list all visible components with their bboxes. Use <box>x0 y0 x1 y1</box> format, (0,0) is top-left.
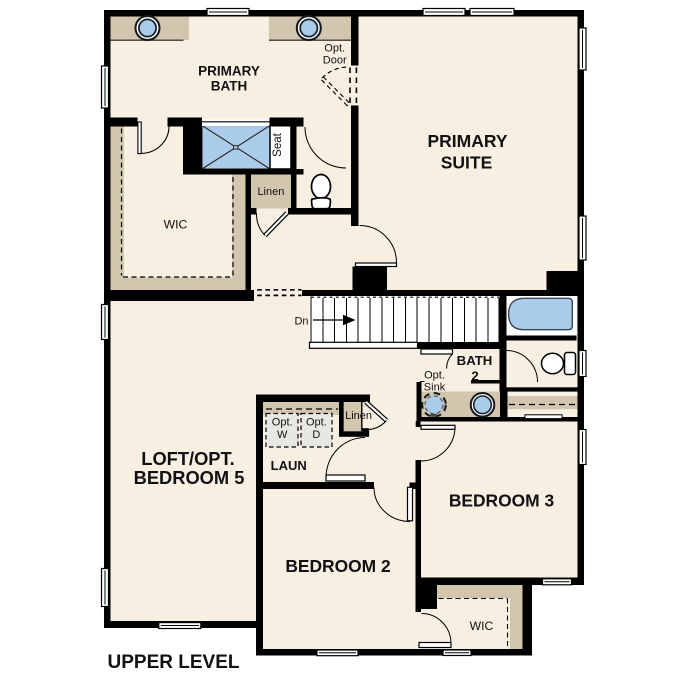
svg-text:Sink: Sink <box>424 381 446 393</box>
svg-text:LOFT/OPT.: LOFT/OPT. <box>141 448 234 469</box>
svg-text:BATH: BATH <box>457 353 493 368</box>
svg-text:2: 2 <box>471 369 478 384</box>
svg-text:LAUN: LAUN <box>271 458 307 473</box>
svg-text:Dn: Dn <box>294 316 308 328</box>
svg-text:Opt.: Opt. <box>324 43 345 55</box>
svg-text:W: W <box>277 429 288 441</box>
svg-text:Seat: Seat <box>272 132 284 156</box>
svg-text:Opt.: Opt. <box>424 369 445 381</box>
svg-text:BEDROOM 5: BEDROOM 5 <box>134 467 245 488</box>
svg-text:Opt.: Opt. <box>272 417 293 429</box>
svg-text:UPPER LEVEL: UPPER LEVEL <box>108 652 240 673</box>
svg-text:SUITE: SUITE <box>441 153 493 173</box>
svg-text:WIC: WIC <box>470 619 494 633</box>
svg-text:BEDROOM 3: BEDROOM 3 <box>449 491 555 511</box>
svg-text:Linen: Linen <box>257 186 284 198</box>
svg-text:WIC: WIC <box>164 218 188 232</box>
svg-text:PRIMARY: PRIMARY <box>198 64 260 79</box>
svg-text:D: D <box>312 429 320 441</box>
svg-text:Linen: Linen <box>345 410 372 422</box>
svg-text:Opt.: Opt. <box>306 417 327 429</box>
svg-text:BEDROOM 2: BEDROOM 2 <box>285 556 390 576</box>
svg-text:PRIMARY: PRIMARY <box>427 131 507 151</box>
svg-text:Door: Door <box>323 54 347 66</box>
svg-text:BATH: BATH <box>211 79 248 94</box>
